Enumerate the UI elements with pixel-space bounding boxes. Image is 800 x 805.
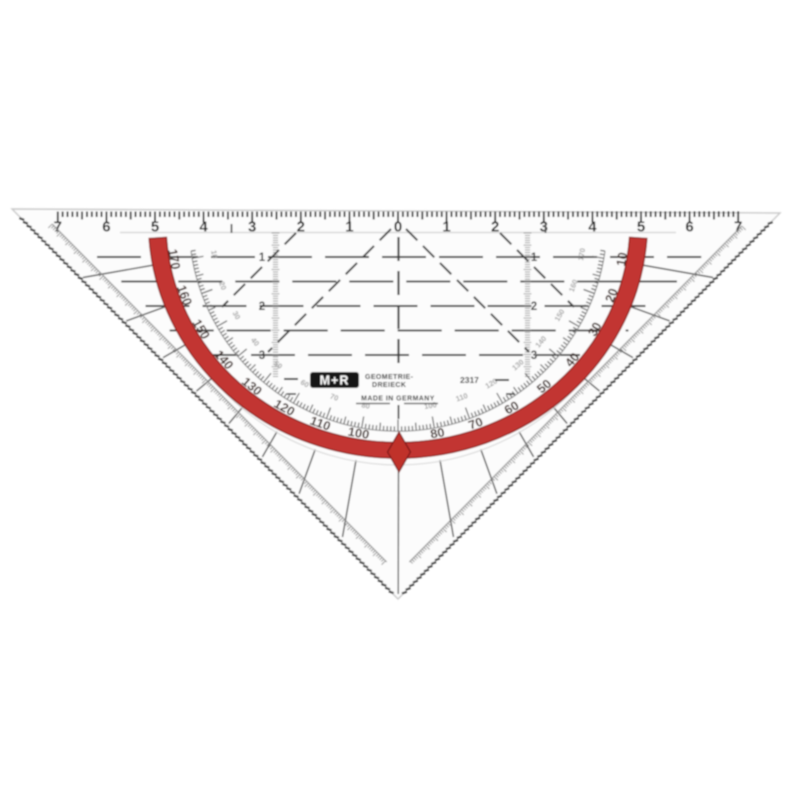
svg-text:DREIECK: DREIECK [372, 382, 406, 389]
svg-text:6: 6 [102, 219, 110, 236]
svg-text:2: 2 [297, 219, 305, 236]
svg-text:3: 3 [248, 219, 256, 236]
svg-text:1: 1 [259, 252, 266, 264]
svg-text:1: 1 [531, 252, 538, 264]
svg-text:M+R: M+R [320, 374, 350, 388]
svg-text:2: 2 [259, 301, 265, 313]
svg-text:1: 1 [345, 219, 353, 236]
svg-text:5: 5 [151, 219, 159, 236]
svg-text:6: 6 [685, 219, 693, 236]
svg-text:MADE IN GERMANY: MADE IN GERMANY [361, 396, 435, 403]
svg-text:5: 5 [637, 219, 645, 236]
svg-text:GEOMETRIE-: GEOMETRIE- [365, 374, 414, 381]
svg-text:3: 3 [540, 219, 548, 236]
svg-text:2317: 2317 [460, 375, 479, 385]
svg-text:2: 2 [531, 301, 537, 313]
svg-text:2: 2 [491, 219, 499, 236]
svg-text:3: 3 [259, 350, 265, 362]
svg-text:4: 4 [199, 219, 208, 236]
svg-text:10: 10 [614, 251, 631, 267]
svg-text:3: 3 [531, 350, 537, 362]
svg-text:10: 10 [209, 249, 219, 259]
svg-text:80: 80 [429, 426, 446, 442]
svg-text:4: 4 [588, 219, 597, 236]
svg-text:0: 0 [394, 219, 402, 236]
svg-text:1: 1 [442, 219, 450, 236]
